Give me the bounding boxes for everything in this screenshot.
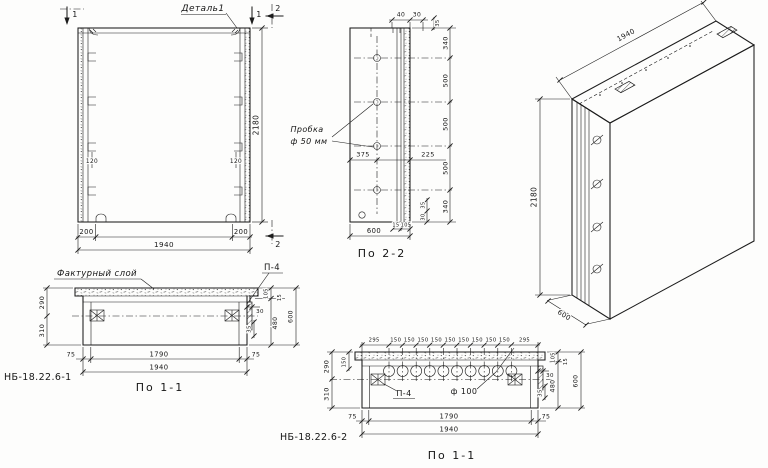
plug-callout-line1: Пробка [290, 125, 323, 134]
section22-title: По 2-2 [358, 247, 406, 260]
section11a-body [83, 296, 247, 345]
section-1-1-left-view: Фактурный слой П-4 290 310 30 35 105 15 … [4, 263, 300, 394]
plug-callout-line2: ф 50 мм [291, 137, 328, 146]
svg-text:2: 2 [275, 240, 281, 249]
svg-text:290: 290 [38, 296, 46, 310]
svg-text:310: 310 [323, 387, 331, 401]
svg-text:340: 340 [442, 200, 450, 214]
iso-dim-length: 1940 [616, 27, 637, 43]
iso-plug-holes [591, 135, 603, 274]
svg-text:500: 500 [442, 74, 450, 88]
svg-text:1790: 1790 [440, 413, 459, 421]
section-mark-1-left: 1 [60, 7, 84, 25]
embedded-plate [90, 310, 104, 321]
svg-text:1790: 1790 [150, 351, 169, 359]
svg-text:500: 500 [442, 161, 450, 175]
svg-text:1940: 1940 [150, 364, 169, 372]
corner-anchor-detail [89, 28, 240, 222]
svg-text:75: 75 [67, 352, 76, 359]
f100-label: ф 100 [451, 387, 478, 396]
svg-text:150: 150 [445, 338, 456, 344]
svg-text:310: 310 [38, 324, 46, 338]
section22-height-chain: 340 500 500 500 340 [412, 25, 456, 224]
svg-text:30: 30 [421, 213, 427, 220]
svg-text:150: 150 [390, 338, 401, 344]
svg-text:105: 105 [264, 288, 270, 299]
svg-text:480: 480 [272, 316, 279, 329]
svg-text:150: 150 [431, 338, 442, 344]
svg-text:30: 30 [413, 12, 421, 19]
svg-text:600: 600 [288, 310, 295, 323]
svg-text:375: 375 [356, 151, 370, 159]
dim-keyway-right: 120 [230, 159, 242, 165]
svg-text:15: 15 [277, 294, 283, 301]
embedded-plate [225, 310, 239, 321]
keyway-bar [538, 366, 543, 390]
svg-text:30: 30 [256, 309, 264, 315]
section-1-1-right-view: П-4 ф 100 295 150 150 150 150 150 150 15… [280, 338, 585, 463]
svg-text:150: 150 [417, 338, 428, 344]
section-mark-2-top: 2 [266, 4, 283, 28]
section-2-2-view: Пробка ф 50 мм 40 30 35 375 225 [290, 12, 456, 261]
svg-text:1940: 1940 [440, 426, 459, 434]
panel-outline [78, 28, 250, 222]
facing-layer-label: Фактурный слой [57, 269, 137, 279]
iso-dim-depth: 600 [556, 308, 572, 322]
svg-text:340: 340 [442, 36, 450, 50]
iso-dim-height: 2180 [530, 187, 539, 208]
panel-mark-1: НБ-18.22.6-1 [4, 372, 72, 383]
section-mark-2-bottom: 2 [266, 220, 283, 249]
iso-dimensions: 1940 2180 600 [530, 0, 717, 328]
svg-text:35: 35 [538, 389, 544, 397]
svg-text:105: 105 [551, 352, 557, 363]
svg-text:35: 35 [421, 201, 427, 208]
iso-edge-face [572, 99, 610, 319]
svg-text:150: 150 [342, 357, 348, 368]
panel-mark-2: НБ-18.22.6-2 [280, 432, 348, 443]
detail-callout-label: Деталь1 [181, 4, 225, 14]
svg-text:1: 1 [72, 10, 78, 19]
front-elevation-view: 120 120 Деталь1 1 1 2 2 [60, 4, 283, 254]
svg-text:2: 2 [275, 4, 281, 13]
section11b-bottom-dims: 75 1790 75 1940 [348, 410, 550, 438]
svg-text:35: 35 [435, 19, 441, 26]
section22-bottom-dims: 15 105 35 30 600 [347, 197, 429, 240]
svg-text:30: 30 [546, 373, 554, 379]
svg-text:600: 600 [573, 374, 580, 387]
plug-holes [354, 55, 452, 194]
dim-rib-left: 200 [79, 228, 93, 236]
section11a-title: По 1-1 [136, 381, 184, 394]
section-mark-1-right: 1 [249, 7, 261, 25]
blueprint-page: 120 120 Деталь1 1 1 2 2 [0, 0, 768, 468]
svg-text:225: 225 [421, 151, 435, 159]
front-dimensions: 2180 200 200 1940 [75, 25, 268, 254]
svg-text:150: 150 [499, 338, 510, 344]
dim-width: 1940 [154, 240, 174, 249]
svg-text:75: 75 [542, 414, 551, 421]
svg-text:15: 15 [563, 358, 569, 365]
svg-text:15: 15 [392, 223, 399, 229]
dim-rib-right: 200 [234, 228, 248, 236]
svg-text:480: 480 [550, 379, 557, 392]
dim-height: 2180 [252, 115, 261, 136]
svg-text:295: 295 [519, 338, 530, 344]
p4-label: П-4 [264, 263, 280, 273]
p4-label: П-4 [396, 389, 411, 398]
svg-text:150: 150 [458, 338, 469, 344]
iso-top-openings [615, 26, 737, 92]
svg-text:75: 75 [252, 352, 261, 359]
svg-text:150: 150 [404, 338, 415, 344]
keyway-marks: 120 120 [86, 53, 242, 195]
svg-text:1: 1 [256, 10, 262, 19]
section11b-left-dims: 290 310 150 [323, 349, 361, 410]
isometric-view: 1940 2180 600 [530, 0, 755, 328]
svg-text:500: 500 [442, 117, 450, 131]
section11a-bottom-dims: 75 1790 75 1940 [67, 347, 261, 376]
dim-keyway-left: 120 [86, 159, 98, 165]
iso-top-face [572, 21, 754, 123]
svg-text:150: 150 [485, 338, 496, 344]
svg-text:150: 150 [472, 338, 483, 344]
svg-text:40: 40 [397, 12, 405, 19]
svg-text:600: 600 [367, 227, 381, 235]
svg-text:75: 75 [348, 414, 357, 421]
svg-text:295: 295 [369, 338, 380, 344]
section11b-title: По 1-1 [428, 449, 476, 462]
svg-text:290: 290 [323, 360, 331, 374]
svg-text:35: 35 [247, 325, 253, 333]
